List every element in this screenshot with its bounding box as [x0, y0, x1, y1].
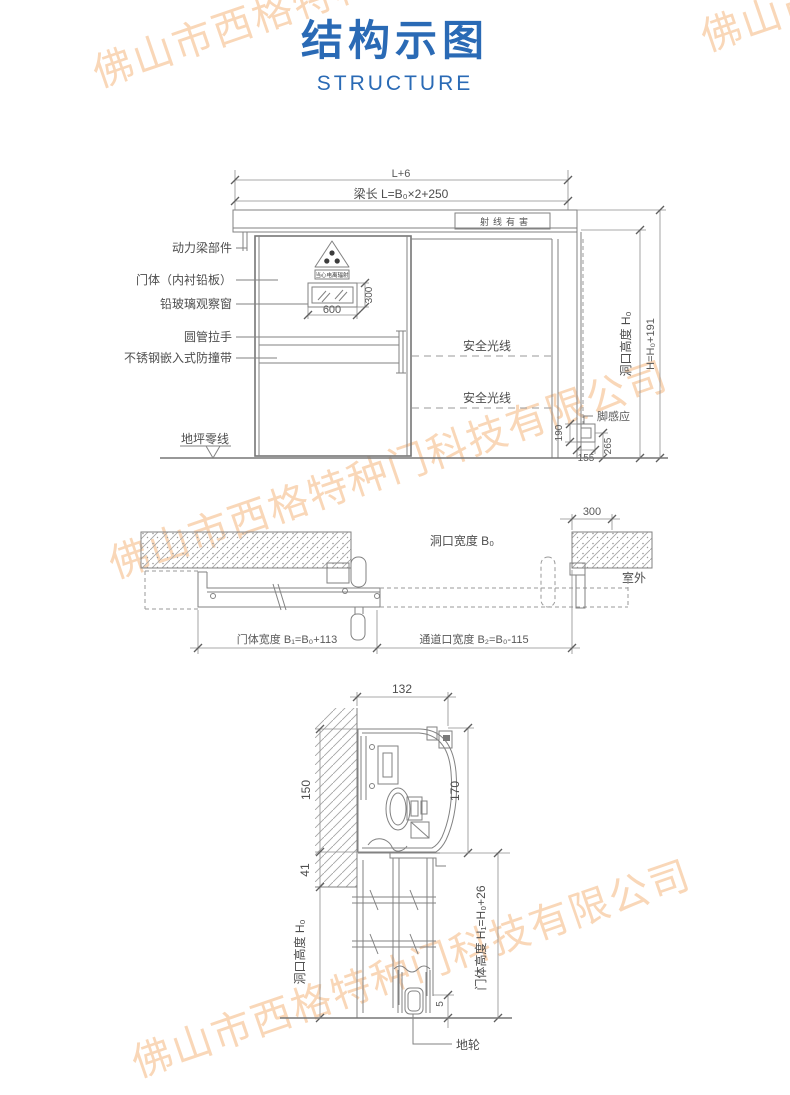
- label-floor-zero-line: 地坪零线: [181, 432, 229, 446]
- door-height-dimension: 门体高度 H₁=H₀+26: [440, 849, 510, 1022]
- header: 结构示图 STRUCTURE: [0, 18, 790, 96]
- plan-view: 洞口宽度 B₀ 300 室外: [141, 506, 652, 654]
- plan-width-dimensions: 门体宽度 B₁=B₀+113 通道口宽度 B₂=B₀-115: [190, 570, 580, 654]
- foot-sensor: 脚感应 190 155 265: [554, 409, 630, 464]
- door-panel: [255, 236, 411, 456]
- dim-hood-height: 150: [299, 780, 313, 800]
- safety-beam-label-lower: 安全光线: [463, 390, 511, 405]
- ground-wheel-label: 地轮: [456, 1038, 480, 1052]
- dim-wheel-clearance: 5: [435, 1001, 446, 1007]
- safety-beam-label-upper: 安全光线: [463, 338, 511, 353]
- drive-unit: [358, 727, 457, 852]
- dim-opening-height-section: 洞口高度 H₀: [292, 919, 307, 984]
- power-beam: 射线有害: [233, 210, 577, 251]
- dim-overall-width: L+6: [392, 168, 411, 180]
- dim-unit-height: 170: [448, 781, 462, 801]
- dim-door-width: 门体宽度 B₁=B₀+113: [237, 632, 337, 646]
- radiation-sign-caption: 当心电离辐射: [315, 271, 349, 279]
- page-subtitle: STRUCTURE: [0, 72, 790, 96]
- section-wall: [315, 708, 357, 887]
- dim-door-height: 门体高度 H₁=H₀+26: [473, 885, 488, 990]
- dim-passage-width: 通道口宽度 B₂=B₀-115: [419, 632, 528, 646]
- dim-window-height: 300: [364, 286, 375, 303]
- dim-opening-width: 洞口宽度 B₀: [430, 533, 494, 548]
- label-power-beam: 动力梁部件: [172, 240, 232, 255]
- plan-left-wall: [141, 532, 351, 568]
- wheel-clearance-dimension: 5: [433, 991, 454, 1028]
- dim-opening-height: 洞口高度 H₀: [618, 311, 633, 376]
- dim-window-width: 600: [323, 304, 341, 316]
- foot-sensor-label: 脚感应: [597, 409, 630, 423]
- dim-sensor-height: 190: [554, 424, 565, 441]
- dim-sensor-offset: 265: [603, 437, 614, 454]
- lead-glass-window: 600 300: [304, 279, 375, 319]
- outdoor-label: 室外: [622, 570, 646, 585]
- radiation-warning-icon: 当心电离辐射: [315, 241, 349, 279]
- front-elevation-view: L+6 梁长 L=B₀×2+250 射线有害: [124, 168, 668, 464]
- label-lead-glass-window: 铅玻璃观察窗: [160, 297, 232, 311]
- dim-beam-length: 梁长 L=B₀×2+250: [354, 186, 449, 201]
- label-bumper-strip: 不锈钢嵌入式防撞带: [124, 350, 232, 365]
- beam-warning-sign: 射线有害: [480, 216, 532, 227]
- dim-overall-height: H=H₀+191: [645, 318, 657, 370]
- plan-door-panel: [145, 557, 628, 640]
- door-opening: 安全光线 安全光线: [411, 232, 583, 458]
- section-view: 132: [280, 682, 512, 1052]
- label-door-body: 门体（内衬铅板）: [136, 272, 232, 287]
- dim-track-depth: 132: [392, 682, 412, 696]
- page-title: 结构示图: [0, 18, 790, 64]
- section-door-leaf: [352, 853, 446, 1018]
- dim-beam-clearance: 41: [298, 863, 312, 877]
- dim-wall-overlap: 300: [583, 506, 601, 518]
- technical-drawing: L+6 梁长 L=B₀×2+250 射线有害: [0, 0, 790, 1095]
- callout-labels: 动力梁部件 门体（内衬铅板） 铅玻璃观察窗 圆管拉手 不锈钢嵌入式防撞带: [124, 240, 399, 365]
- label-tube-handle: 圆管拉手: [184, 329, 232, 344]
- structure-diagram-page: 佛山市西格特种门科技有限公司 佛山市西格特种门科技有限公司 佛山市西格特种门科技…: [0, 0, 790, 1095]
